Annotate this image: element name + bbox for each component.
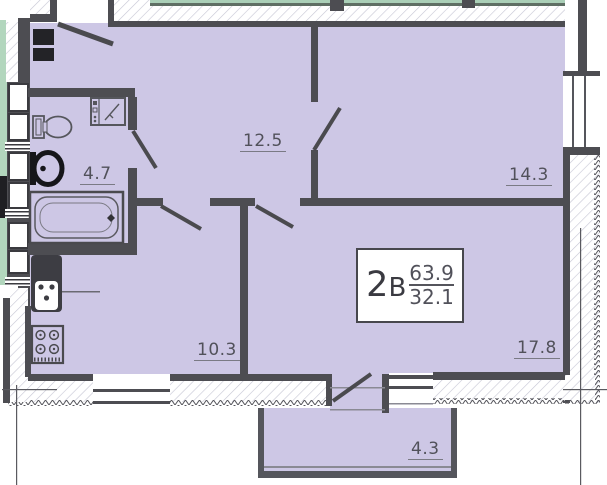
balcony-window-icon	[389, 373, 433, 408]
apartment-total-area: 63.9	[409, 263, 454, 284]
apartment-info-box: 2В 63.9 32.1	[356, 248, 464, 323]
right-exterior-wall	[563, 0, 607, 403]
toilet-icon	[33, 116, 72, 138]
area-label-hallway: 12.5	[240, 133, 286, 152]
floor-plan-drawing	[0, 0, 607, 485]
kitchen-window-icon	[93, 374, 170, 407]
apartment-type-letter: В	[388, 273, 406, 303]
top-exterior-wall	[30, 0, 565, 27]
area-label-living: 17.8	[514, 340, 560, 359]
area-label-bedroom: 14.3	[506, 167, 552, 186]
vent-shaft-icon	[33, 29, 54, 61]
apartment-living-area: 32.1	[409, 284, 454, 308]
apartment-type-label: 2В	[366, 268, 406, 303]
apartment-type-number: 2	[366, 265, 388, 305]
floor-plan: 12.5 14.3 4.7 10.3 17.8 4.3 2В 63.9 32.1	[0, 0, 607, 485]
apartment-areas: 63.9 32.1	[409, 263, 454, 308]
area-label-bathroom: 4.7	[80, 166, 115, 185]
bedroom-window-icon	[563, 71, 600, 155]
area-label-balcony: 4.3	[408, 441, 443, 460]
area-label-kitchen: 10.3	[194, 342, 240, 361]
